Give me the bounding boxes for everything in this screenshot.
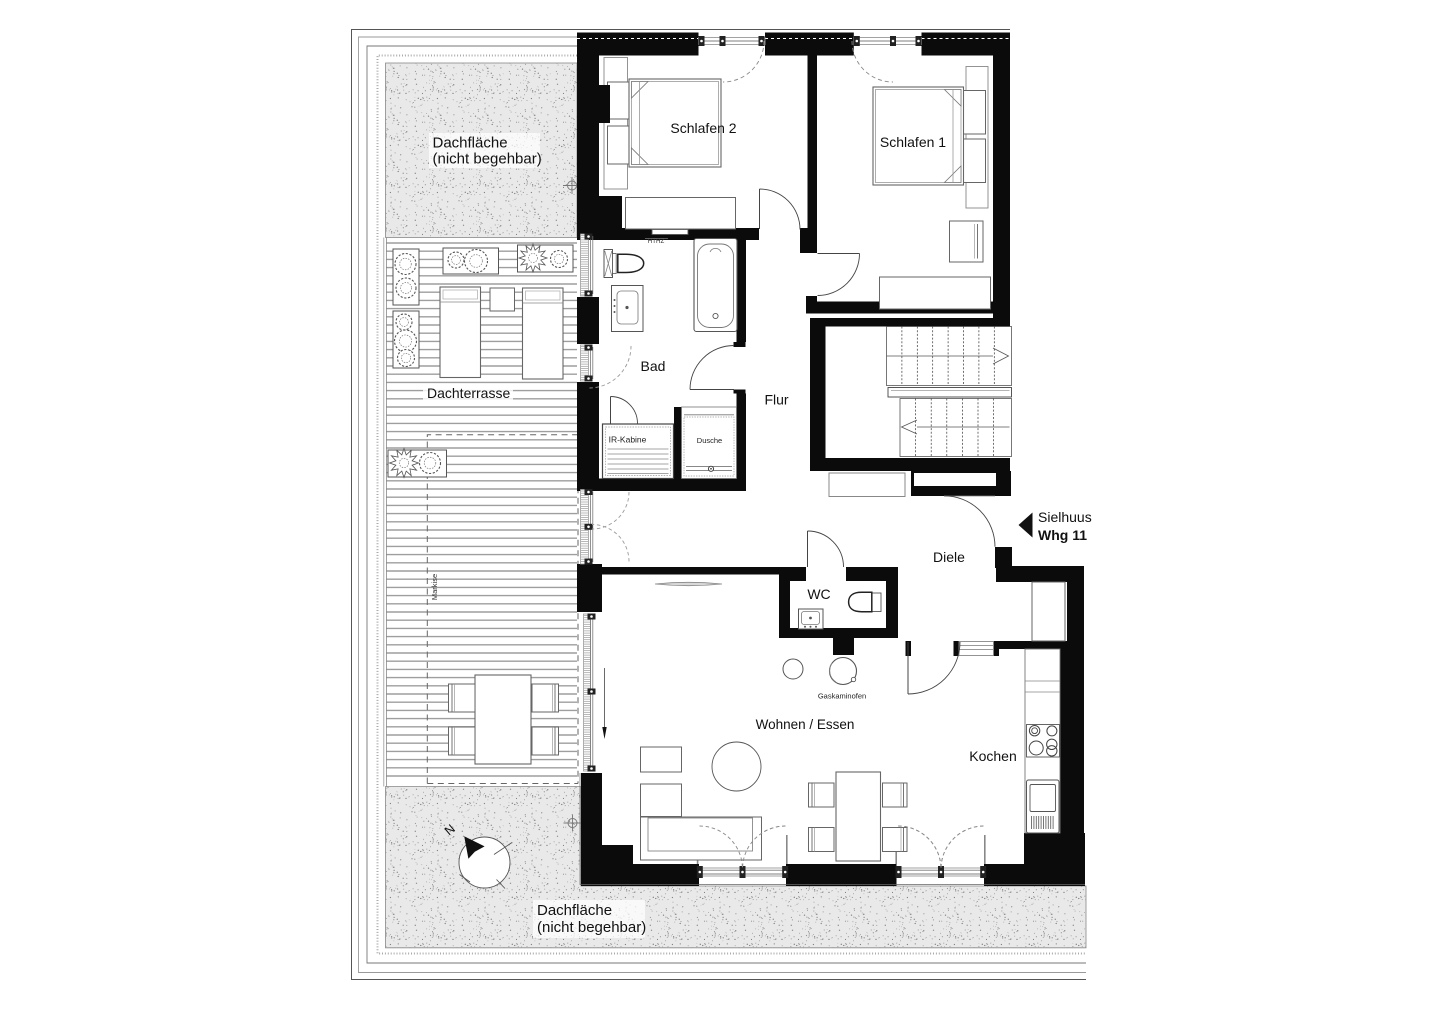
svg-text:Diele: Diele <box>933 549 965 565</box>
svg-text:Schlafen 1: Schlafen 1 <box>880 134 946 150</box>
svg-text:Sielhuus: Sielhuus <box>1038 509 1092 525</box>
svg-text:(nicht begehbar): (nicht begehbar) <box>537 919 646 936</box>
svg-text:Bad: Bad <box>641 358 666 374</box>
svg-text:Dusche: Dusche <box>697 436 722 445</box>
svg-text:Dachfläche: Dachfläche <box>537 902 612 919</box>
svg-text:Flur: Flur <box>764 392 788 408</box>
svg-text:Gaskaminofen: Gaskaminofen <box>818 692 866 701</box>
svg-text:Whg 11: Whg 11 <box>1038 527 1087 543</box>
svg-text:WC: WC <box>807 586 830 602</box>
svg-text:IR-Kabine: IR-Kabine <box>609 435 647 445</box>
svg-text:Wohnen / Essen: Wohnen / Essen <box>756 717 855 732</box>
svg-text:Dachterrasse: Dachterrasse <box>427 385 510 401</box>
svg-text:Dachfläche: Dachfläche <box>433 135 508 152</box>
svg-text:Markise: Markise <box>430 574 439 600</box>
svg-text:Schlafen 2: Schlafen 2 <box>670 120 736 136</box>
svg-text:(nicht begehbar): (nicht begehbar) <box>433 151 542 168</box>
svg-text:Kochen: Kochen <box>969 748 1016 764</box>
svg-text:HTHZ: HTHZ <box>648 238 665 245</box>
